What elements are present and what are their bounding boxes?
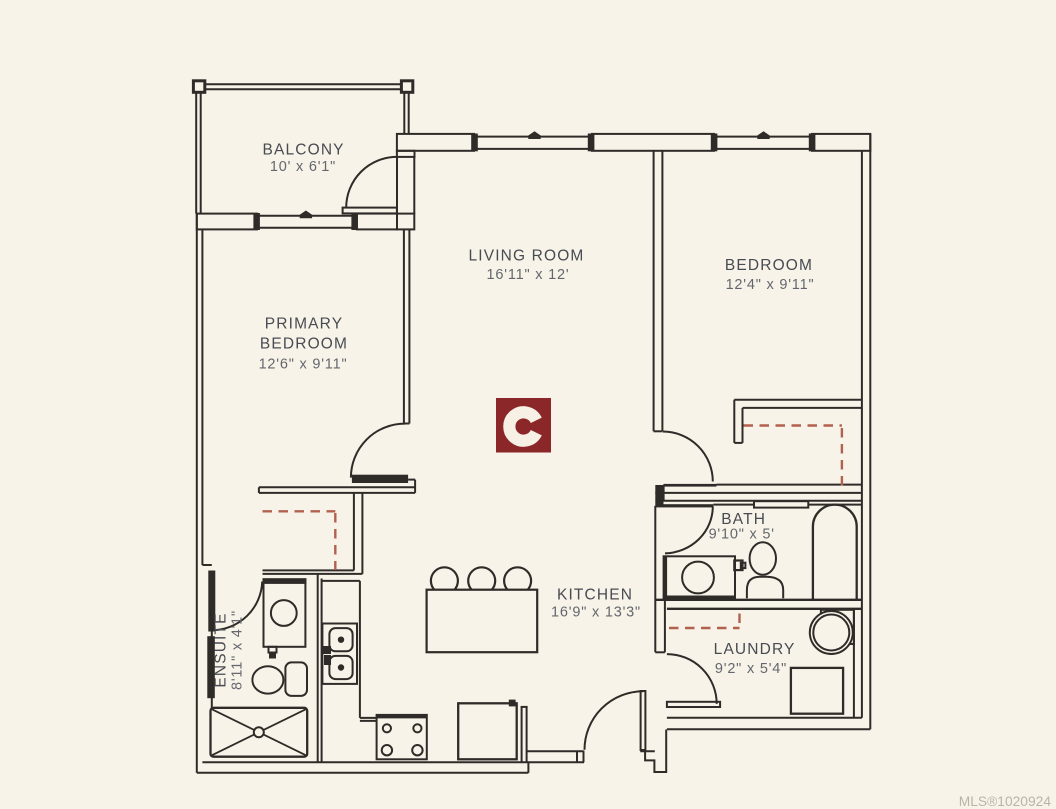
svg-text:BEDROOM: BEDROOM <box>725 257 813 274</box>
svg-text:LIVING ROOM: LIVING ROOM <box>469 248 585 265</box>
svg-text:9'10" x 5': 9'10" x 5' <box>709 527 775 543</box>
svg-text:9'2" x 5'4": 9'2" x 5'4" <box>715 661 787 677</box>
svg-text:10' x 6'1": 10' x 6'1" <box>270 159 336 175</box>
svg-text:8'11" x 4'1": 8'11" x 4'1" <box>230 610 246 690</box>
svg-text:16'11" x 12': 16'11" x 12' <box>487 267 570 283</box>
svg-text:16'9" x 13'3": 16'9" x 13'3" <box>551 605 641 621</box>
svg-text:ENSUITE: ENSUITE <box>213 612 230 687</box>
svg-text:12'4" x 9'11": 12'4" x 9'11" <box>726 277 815 293</box>
svg-text:LAUNDRY: LAUNDRY <box>714 641 796 658</box>
svg-text:MLS®1020924: MLS®1020924 <box>959 794 1052 809</box>
svg-text:BEDROOM: BEDROOM <box>260 336 348 353</box>
svg-text:BALCONY: BALCONY <box>263 142 345 159</box>
svg-text:12'6" x 9'11": 12'6" x 9'11" <box>259 357 348 373</box>
svg-text:PRIMARY: PRIMARY <box>265 316 343 333</box>
svg-text:KITCHEN: KITCHEN <box>557 587 633 604</box>
